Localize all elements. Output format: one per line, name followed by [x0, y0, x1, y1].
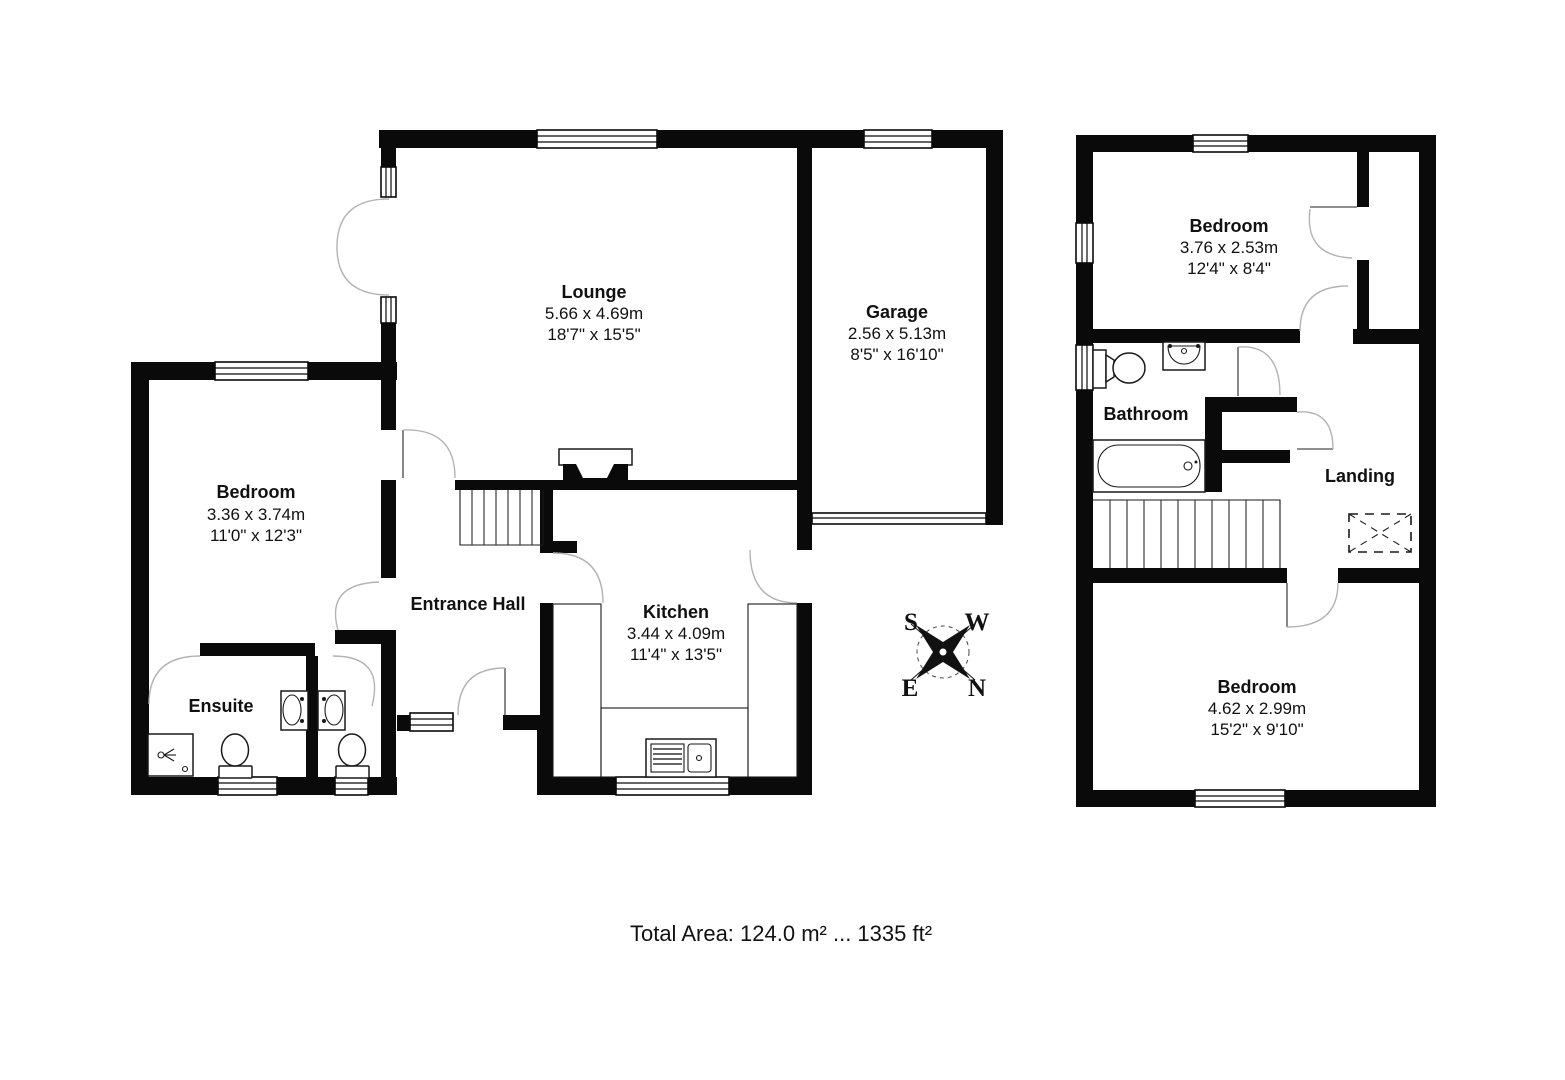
cupboard-door-arc: [1297, 412, 1333, 449]
compass-north: N: [968, 675, 986, 702]
garage-door: [812, 513, 986, 524]
window: [218, 777, 277, 795]
bedroom-front-dim-metric: 3.76 x 2.53m: [1180, 238, 1278, 257]
bedroom-gf-dim-imperial: 11'0" x 12'3": [210, 526, 302, 545]
window: [864, 130, 932, 148]
bedroom-gf-label: Bedroom: [216, 482, 295, 502]
floorplan-drawing: Lounge 5.66 x 4.69m 18'7" x 15'5" Garage…: [0, 0, 1565, 1080]
toilet-icon: [219, 734, 252, 778]
compass-rose-icon: S W E N: [902, 609, 990, 702]
bedroom-rear-dim-imperial: 15'2" x 9'10": [1210, 720, 1303, 739]
window: [381, 297, 396, 323]
window: [1076, 223, 1093, 263]
sink-icon: [1163, 342, 1205, 370]
shower-icon: [148, 734, 193, 776]
window: [1195, 790, 1285, 807]
bedroom-front-door-arc: [1300, 286, 1348, 331]
toilet-icon: [1093, 350, 1145, 388]
fireplace-icon: [559, 449, 632, 481]
bedroom-rear-label: Bedroom: [1217, 677, 1296, 697]
kitchen-label: Kitchen: [643, 602, 709, 622]
compass-south: S: [904, 609, 918, 636]
bedroom-rear-door-arc: [1287, 583, 1338, 627]
kitchen-dim-metric: 3.44 x 4.09m: [627, 624, 725, 643]
loft-hatch-icon: [1349, 514, 1411, 552]
window: [1193, 135, 1248, 152]
ensuite-label: Ensuite: [188, 696, 253, 716]
back-door-arc: [750, 550, 797, 603]
bedroom-front-dim-imperial: 12'4" x 8'4": [1187, 259, 1271, 278]
bedroom-rear-dim-metric: 4.62 x 2.99m: [1208, 699, 1306, 718]
compass-west: W: [965, 609, 990, 636]
staircase: [460, 490, 543, 545]
bathroom-label: Bathroom: [1104, 404, 1189, 424]
garage-dim-imperial: 8'5" x 16'10": [850, 345, 943, 364]
window: [381, 167, 396, 197]
front-door-arc: [458, 668, 505, 715]
window: [215, 362, 308, 380]
sink-icon: [318, 691, 345, 730]
lounge-label: Lounge: [562, 282, 627, 302]
bathroom-door-arc: [1238, 347, 1280, 396]
kitchen-door-arc: [553, 553, 603, 603]
landing-label: Landing: [1325, 466, 1395, 486]
lounge-dim-metric: 5.66 x 4.69m: [545, 304, 643, 323]
floorplan-page: Lounge 5.66 x 4.69m 18'7" x 15'5" Garage…: [0, 0, 1565, 1080]
garage-label: Garage: [866, 302, 928, 322]
window: [1076, 345, 1093, 390]
french-doors-arc: [337, 199, 389, 295]
lounge-door-arc: [403, 430, 455, 478]
window: [616, 777, 729, 795]
bedroom-front-label: Bedroom: [1189, 216, 1268, 236]
entrance-hall-label: Entrance Hall: [410, 594, 525, 614]
garage-dim-metric: 2.56 x 5.13m: [848, 324, 946, 343]
bathtub-icon: [1093, 440, 1205, 492]
front-door-threshold: [410, 713, 453, 731]
compass-east: E: [902, 675, 919, 702]
kitchen-sink-icon: [646, 739, 716, 777]
staircase: [1093, 500, 1280, 568]
first-floor-plan: Bedroom 3.76 x 2.53m 12'4" x 8'4" Bathro…: [1076, 135, 1436, 807]
toilet-icon: [336, 734, 369, 778]
ground-floor-plan: Lounge 5.66 x 4.69m 18'7" x 15'5" Garage…: [131, 130, 1003, 795]
total-area-text: Total Area: 124.0 m² ... 1335 ft²: [630, 921, 932, 946]
window: [335, 777, 368, 795]
closet-door-arc: [1309, 207, 1357, 258]
lounge-dim-imperial: 18'7" x 15'5": [547, 325, 640, 344]
sink-icon: [281, 691, 308, 730]
bedroom-door-arc: [335, 582, 379, 630]
bedroom-gf-dim-metric: 3.36 x 3.74m: [207, 505, 305, 524]
window: [537, 130, 657, 148]
kitchen-dim-imperial: 11'4" x 13'5": [630, 645, 722, 664]
